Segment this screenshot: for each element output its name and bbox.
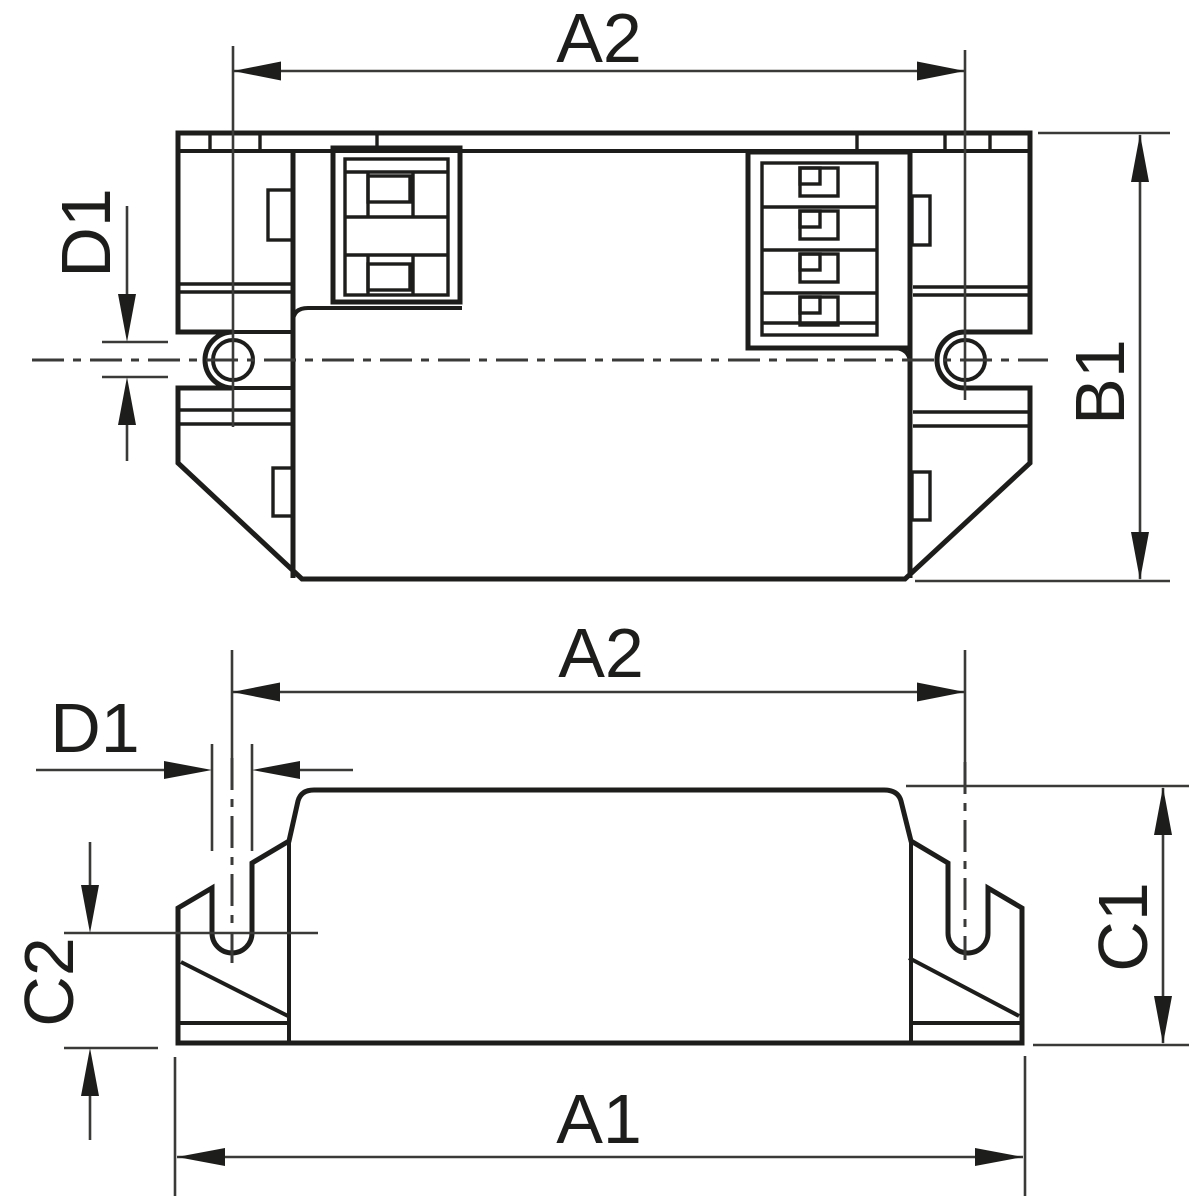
dimension-c2: C2 — [10, 842, 318, 1140]
arrowhead-up — [118, 377, 136, 425]
side-tab — [268, 190, 293, 240]
platform-contour-left — [293, 308, 462, 332]
terminal-pole-port-inner — [800, 254, 820, 270]
gusset-left — [181, 962, 288, 1016]
arrowhead-left — [252, 761, 300, 779]
dimension-d1-side: D1 — [36, 689, 353, 851]
arrowhead-left — [233, 62, 281, 81]
terminal-pole-port-inner — [800, 168, 820, 184]
terminal-pole-port — [368, 176, 410, 202]
dimension-a2-top: A2 — [233, 0, 965, 427]
top-view-outline — [178, 133, 1030, 579]
side-view: A2 D1 C2 C1 — [10, 614, 1189, 1196]
dimension-a1: A1 — [175, 1056, 1025, 1196]
arrowhead-right — [975, 1148, 1023, 1166]
arrowhead-down — [1131, 532, 1149, 580]
arrowhead-up — [81, 1048, 99, 1096]
dim-label-b1: B1 — [1061, 339, 1139, 425]
arrowhead-right — [164, 761, 212, 779]
dim-label-c2: C2 — [10, 937, 88, 1026]
dimension-drawing: A2 D1 B1 — [0, 0, 1200, 1200]
arrowhead-right — [917, 62, 965, 81]
side-tab — [912, 472, 930, 520]
terminal-block-2pole-dividers — [345, 217, 448, 255]
side-tab — [912, 196, 930, 245]
arrowhead-left — [177, 1148, 225, 1166]
dim-label-c1: C1 — [1084, 882, 1162, 971]
rib-lines-left — [178, 284, 293, 424]
terminal-block-2pole — [333, 148, 460, 302]
dim-label-d1-top: D1 — [47, 188, 125, 277]
arrowhead-down — [118, 294, 136, 342]
drawing-canvas: A2 D1 B1 — [0, 0, 1200, 1200]
top-view: A2 D1 B1 — [32, 0, 1170, 581]
terminal-block-2pole-face — [345, 159, 448, 295]
arrowhead-down — [1154, 996, 1172, 1044]
dim-label-a1: A1 — [556, 1080, 642, 1158]
top-strip-ticks — [210, 133, 990, 151]
terminal-pole-port-inner — [800, 211, 820, 227]
dim-label-a2-side: A2 — [558, 614, 644, 692]
rib-lines-right — [913, 287, 1030, 426]
terminal-pole-port-inner — [800, 297, 820, 313]
terminal-block-4pole — [748, 152, 910, 348]
terminal-pole-port — [368, 264, 410, 290]
side-view-outline — [178, 790, 1022, 1043]
dimension-b1: B1 — [915, 133, 1170, 581]
dimension-a2-side: A2 — [232, 614, 965, 702]
gusset-right — [909, 958, 1019, 1016]
dim-label-a2-top: A2 — [556, 0, 642, 77]
dimension-d1-top: D1 — [47, 188, 168, 461]
side-tab — [273, 468, 293, 516]
arrowhead-up — [1131, 134, 1149, 182]
arrowhead-left — [232, 683, 280, 702]
arrowhead-down — [81, 885, 99, 933]
arrowhead-up — [1154, 787, 1172, 835]
terminal-pole-walls — [368, 172, 413, 295]
dim-label-d1-side: D1 — [50, 689, 139, 767]
arrowhead-right — [917, 683, 965, 702]
